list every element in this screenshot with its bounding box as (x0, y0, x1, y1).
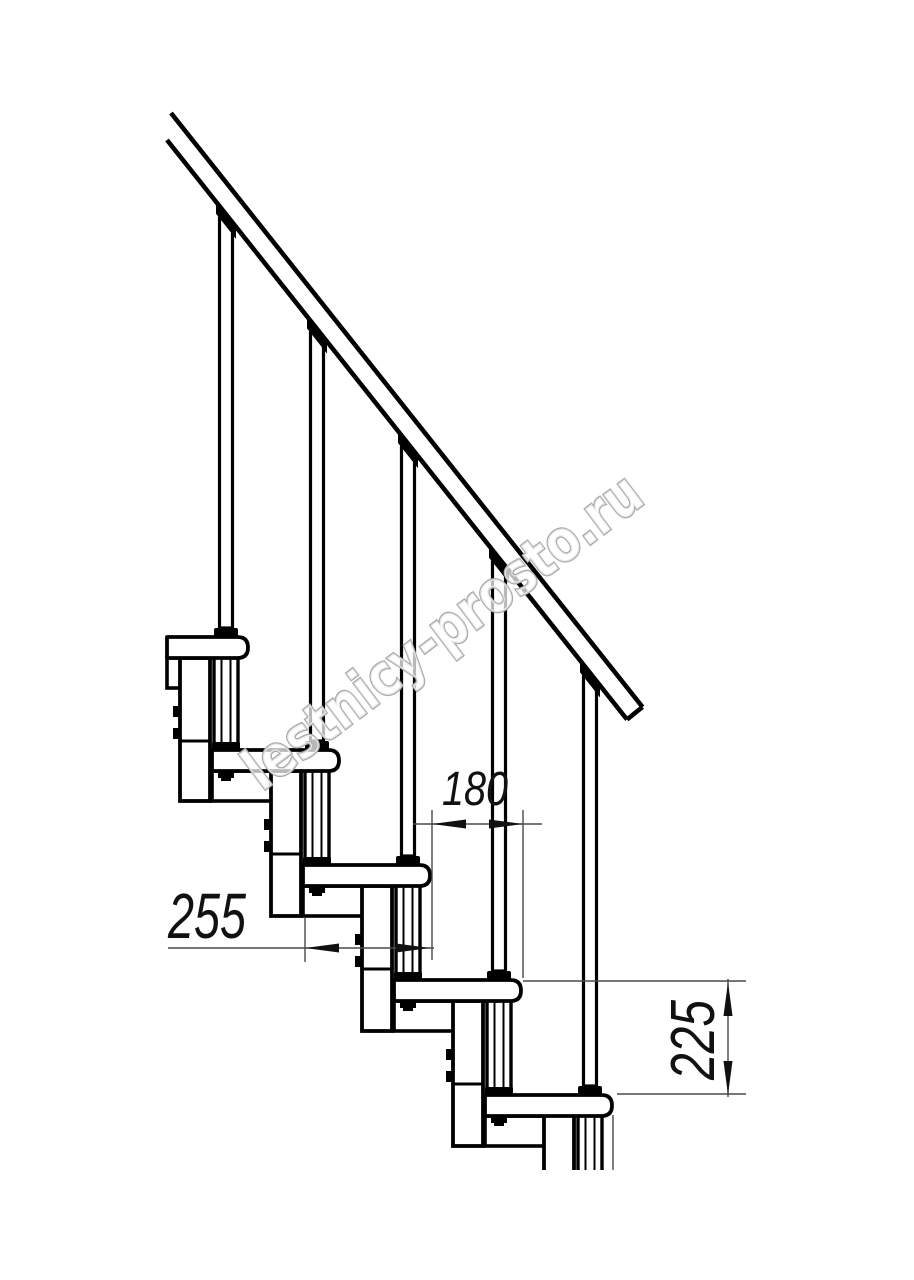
tread (394, 980, 521, 1001)
stand-foot (303, 857, 331, 865)
baluster-foot (487, 971, 511, 980)
stand-tube (305, 769, 329, 865)
stringer-column (453, 1001, 483, 1146)
staircase-drawing-canvas: 180 255 225 lestnicy-prosto.ru (0, 0, 914, 1280)
stand-foot (485, 1087, 513, 1095)
stand-tube (487, 999, 511, 1095)
lock-nut (309, 886, 325, 893)
stand-foot (394, 972, 422, 980)
stand-tube (396, 884, 420, 980)
lock-nut (491, 1116, 507, 1123)
tread (167, 637, 248, 658)
arrow-left-icon (305, 944, 339, 953)
stringer-column (362, 886, 392, 1031)
clamp-bolt (446, 1071, 454, 1082)
dimension-step-rise: 225 (523, 979, 746, 1097)
clamp-bolt (173, 706, 181, 717)
dimension-step-run: 180 (413, 763, 542, 978)
clamp-bolt (355, 934, 363, 945)
lock-nut-washer (494, 1123, 504, 1126)
lock-nut-washer (312, 893, 322, 896)
dim-tread-depth-label: 255 (167, 880, 246, 952)
clamp-bolt (264, 819, 272, 830)
tread (485, 1095, 612, 1116)
clamp-bolt (446, 1049, 454, 1060)
lock-nut-washer (221, 778, 231, 781)
baluster-foot (578, 1086, 602, 1095)
stringer-column (180, 658, 210, 801)
arrow-left-icon (432, 820, 466, 829)
witness-lines-180 (432, 810, 523, 978)
clamp-bolt (173, 728, 181, 739)
clamp-bolt (264, 841, 272, 852)
tread (303, 865, 430, 886)
baluster (584, 677, 597, 1086)
lock-nut-washer (403, 1008, 413, 1011)
dim-step-run-label: 180 (442, 763, 508, 816)
baluster-foot (396, 856, 420, 865)
clamp-bolt (355, 956, 363, 967)
baluster (220, 218, 233, 628)
baluster-foot (214, 628, 238, 637)
stand-tube-cut (578, 1114, 602, 1170)
staircase-side-view: 180 255 225 lestnicy-prosto.ru (0, 0, 914, 1280)
lock-nut (400, 1001, 416, 1008)
lock-nut (218, 771, 234, 778)
stand-tube (214, 656, 238, 750)
stringer-column-cut (544, 1116, 574, 1170)
dim-step-rise-label: 225 (659, 1000, 728, 1081)
